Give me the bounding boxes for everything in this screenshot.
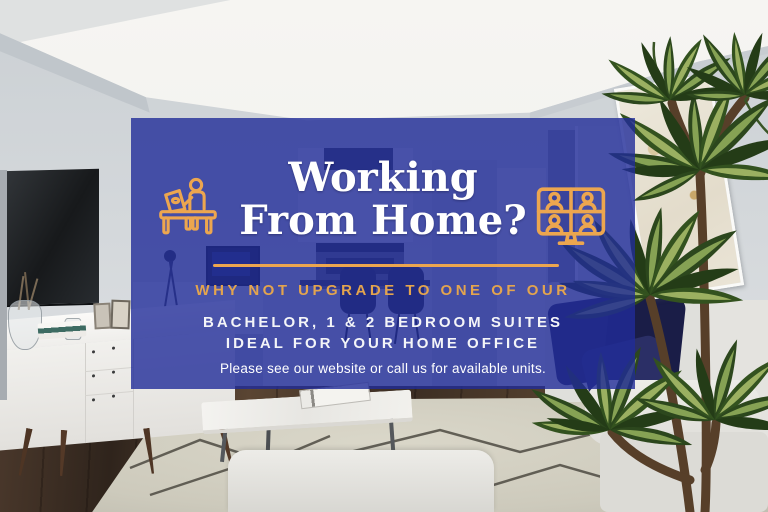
leaf-rosette	[685, 30, 768, 105]
video-conference-monitor-icon	[535, 184, 607, 252]
body-line1: BACHELOR, 1 & 2 BEDROOM SUITES	[131, 312, 635, 333]
gold-divider	[213, 264, 559, 267]
picture-frame	[110, 300, 130, 330]
body-text: BACHELOR, 1 & 2 BEDROOM SUITES IDEAL FOR…	[131, 312, 635, 354]
foreground-bench	[228, 450, 494, 512]
drawer-seam	[85, 343, 86, 443]
footer-text: Please see our website or call us for av…	[131, 361, 635, 376]
left-edge-shadow	[0, 170, 7, 400]
picture-frame	[93, 303, 111, 330]
body-line2: IDEAL FOR YOUR HOME OFFICE	[131, 333, 635, 354]
book-stack	[38, 320, 87, 339]
subheadline: WHY NOT UPGRADE TO ONE OF OUR	[131, 282, 635, 299]
tv-screen	[0, 169, 99, 308]
promo-overlay: Working From Home? WHY NOT UPGRADE TO ON…	[131, 118, 635, 389]
promo-graphic: Working From Home? WHY NOT UPGRADE TO ON…	[0, 0, 768, 512]
